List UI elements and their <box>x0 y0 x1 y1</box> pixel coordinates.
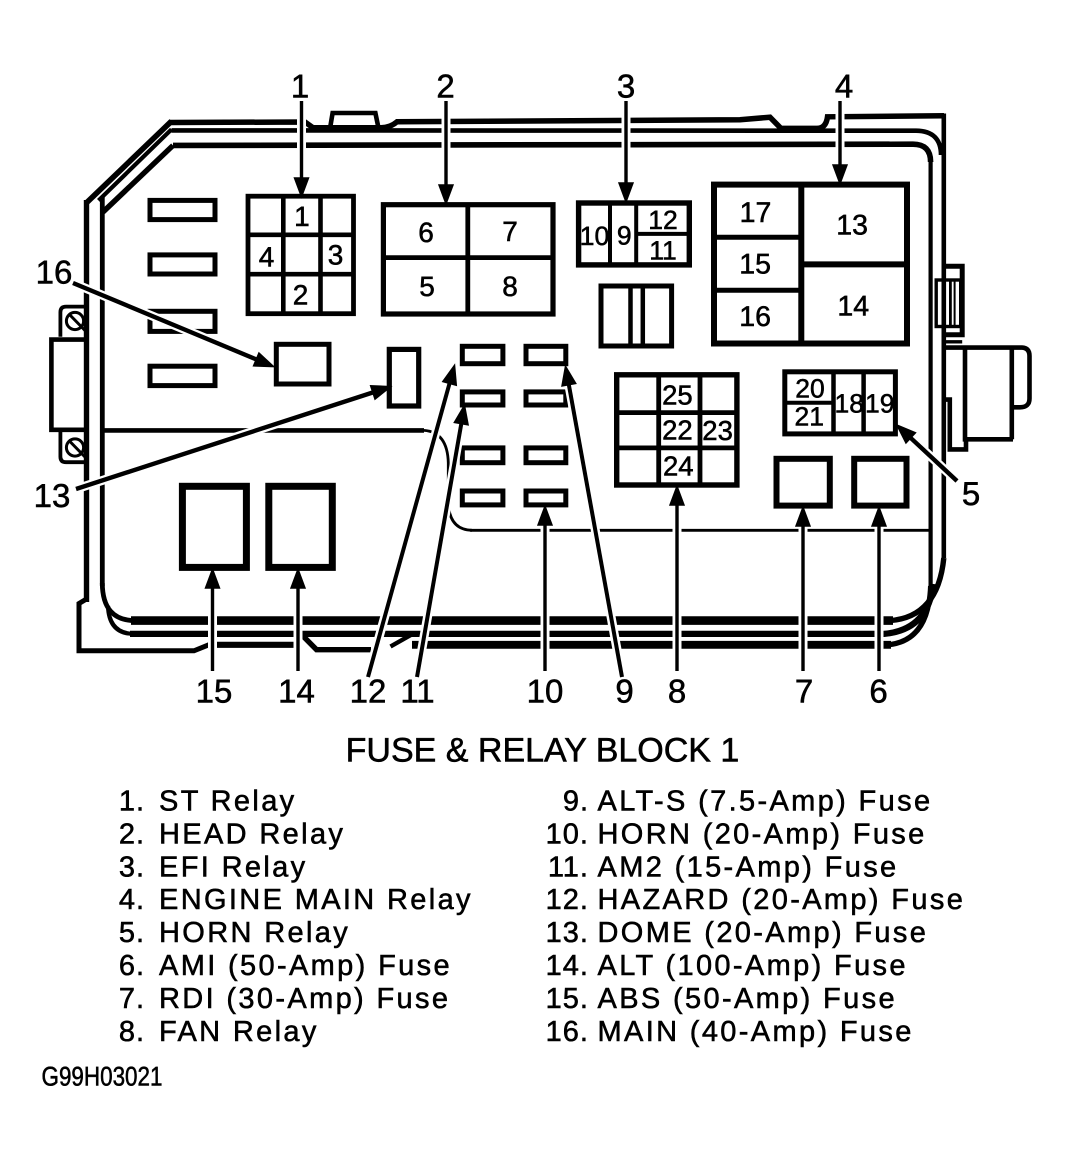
svg-text:9: 9 <box>615 673 633 710</box>
svg-text:5: 5 <box>419 271 435 302</box>
svg-text:14.: 14. <box>546 950 589 982</box>
svg-text:ABS (50-Amp) Fuse: ABS (50-Amp) Fuse <box>598 983 897 1015</box>
svg-text:RDI (30-Amp) Fuse: RDI (30-Amp) Fuse <box>159 983 450 1015</box>
svg-text:5: 5 <box>962 475 980 512</box>
svg-text:13.: 13. <box>546 917 589 949</box>
svg-text:ALT-S (7.5-Amp) Fuse: ALT-S (7.5-Amp) Fuse <box>598 786 933 818</box>
svg-text:12.: 12. <box>546 884 589 916</box>
svg-text:7: 7 <box>795 673 813 710</box>
svg-text:HEAD Relay: HEAD Relay <box>159 818 345 850</box>
svg-text:DOME (20-Amp) Fuse: DOME (20-Amp) Fuse <box>598 917 929 949</box>
svg-text:3: 3 <box>328 240 344 271</box>
svg-text:4: 4 <box>835 68 853 105</box>
svg-text:15: 15 <box>739 249 771 281</box>
svg-text:15: 15 <box>196 673 233 710</box>
svg-text:9.: 9. <box>563 786 589 818</box>
svg-text:AM2 (15-Amp) Fuse: AM2 (15-Amp) Fuse <box>598 851 899 883</box>
svg-text:4.: 4. <box>119 884 145 916</box>
svg-text:8: 8 <box>668 673 686 710</box>
svg-text:ENGINE MAIN Relay: ENGINE MAIN Relay <box>159 884 473 916</box>
svg-text:11: 11 <box>400 673 434 710</box>
svg-text:8: 8 <box>502 271 518 302</box>
svg-text:6.: 6. <box>119 950 145 982</box>
svg-text:FAN Relay: FAN Relay <box>159 1016 319 1048</box>
svg-text:2: 2 <box>293 280 309 311</box>
svg-text:18: 18 <box>835 389 864 419</box>
svg-text:1.: 1. <box>119 786 145 818</box>
svg-text:AMI (50-Amp) Fuse: AMI (50-Amp) Fuse <box>159 950 452 982</box>
svg-text:MAIN (40-Amp) Fuse: MAIN (40-Amp) Fuse <box>598 1016 914 1048</box>
svg-text:9: 9 <box>617 221 632 251</box>
svg-text:16: 16 <box>739 301 771 333</box>
svg-text:8.: 8. <box>119 1016 145 1048</box>
svg-text:25: 25 <box>662 380 693 411</box>
svg-text:23: 23 <box>702 415 733 446</box>
svg-text:24: 24 <box>663 451 694 482</box>
svg-text:HORN (20-Amp) Fuse: HORN (20-Amp) Fuse <box>598 818 927 850</box>
svg-text:11.: 11. <box>548 851 589 883</box>
svg-text:ST Relay: ST Relay <box>159 786 297 818</box>
svg-text:6: 6 <box>869 673 887 710</box>
svg-text:16: 16 <box>36 254 73 291</box>
svg-text:20: 20 <box>795 373 824 403</box>
svg-text:21: 21 <box>795 402 824 432</box>
svg-text:2: 2 <box>436 68 454 105</box>
svg-text:1: 1 <box>291 68 309 105</box>
svg-text:22: 22 <box>662 415 693 446</box>
svg-text:10.: 10. <box>546 818 589 850</box>
svg-text:13: 13 <box>836 210 868 242</box>
svg-text:FUSE & RELAY BLOCK 1: FUSE & RELAY BLOCK 1 <box>346 732 740 770</box>
svg-text:HORN Relay: HORN Relay <box>159 917 350 949</box>
svg-text:G99H03021: G99H03021 <box>42 1062 163 1092</box>
svg-text:14: 14 <box>837 291 869 323</box>
svg-text:13: 13 <box>34 477 71 514</box>
svg-text:11: 11 <box>649 236 677 266</box>
svg-text:2.: 2. <box>119 818 145 850</box>
svg-text:7: 7 <box>502 216 518 247</box>
svg-text:HAZARD (20-Amp) Fuse: HAZARD (20-Amp) Fuse <box>598 884 966 916</box>
svg-text:17: 17 <box>740 197 772 229</box>
svg-text:12: 12 <box>350 673 387 710</box>
svg-text:EFI Relay: EFI Relay <box>159 851 307 883</box>
svg-text:10: 10 <box>580 221 609 251</box>
svg-text:4: 4 <box>259 242 275 273</box>
svg-text:15.: 15. <box>546 983 589 1015</box>
svg-text:7.: 7. <box>119 983 145 1015</box>
svg-text:19: 19 <box>865 389 894 419</box>
svg-text:3: 3 <box>617 68 635 105</box>
svg-text:16.: 16. <box>546 1016 589 1048</box>
svg-text:14: 14 <box>278 673 315 710</box>
svg-text:3.: 3. <box>119 851 145 883</box>
svg-text:ALT (100-Amp) Fuse: ALT (100-Amp) Fuse <box>598 950 908 982</box>
svg-text:12: 12 <box>648 205 677 235</box>
svg-text:10: 10 <box>527 673 564 710</box>
svg-text:1: 1 <box>294 201 310 232</box>
svg-text:6: 6 <box>418 217 434 248</box>
svg-text:5.: 5. <box>119 917 145 949</box>
